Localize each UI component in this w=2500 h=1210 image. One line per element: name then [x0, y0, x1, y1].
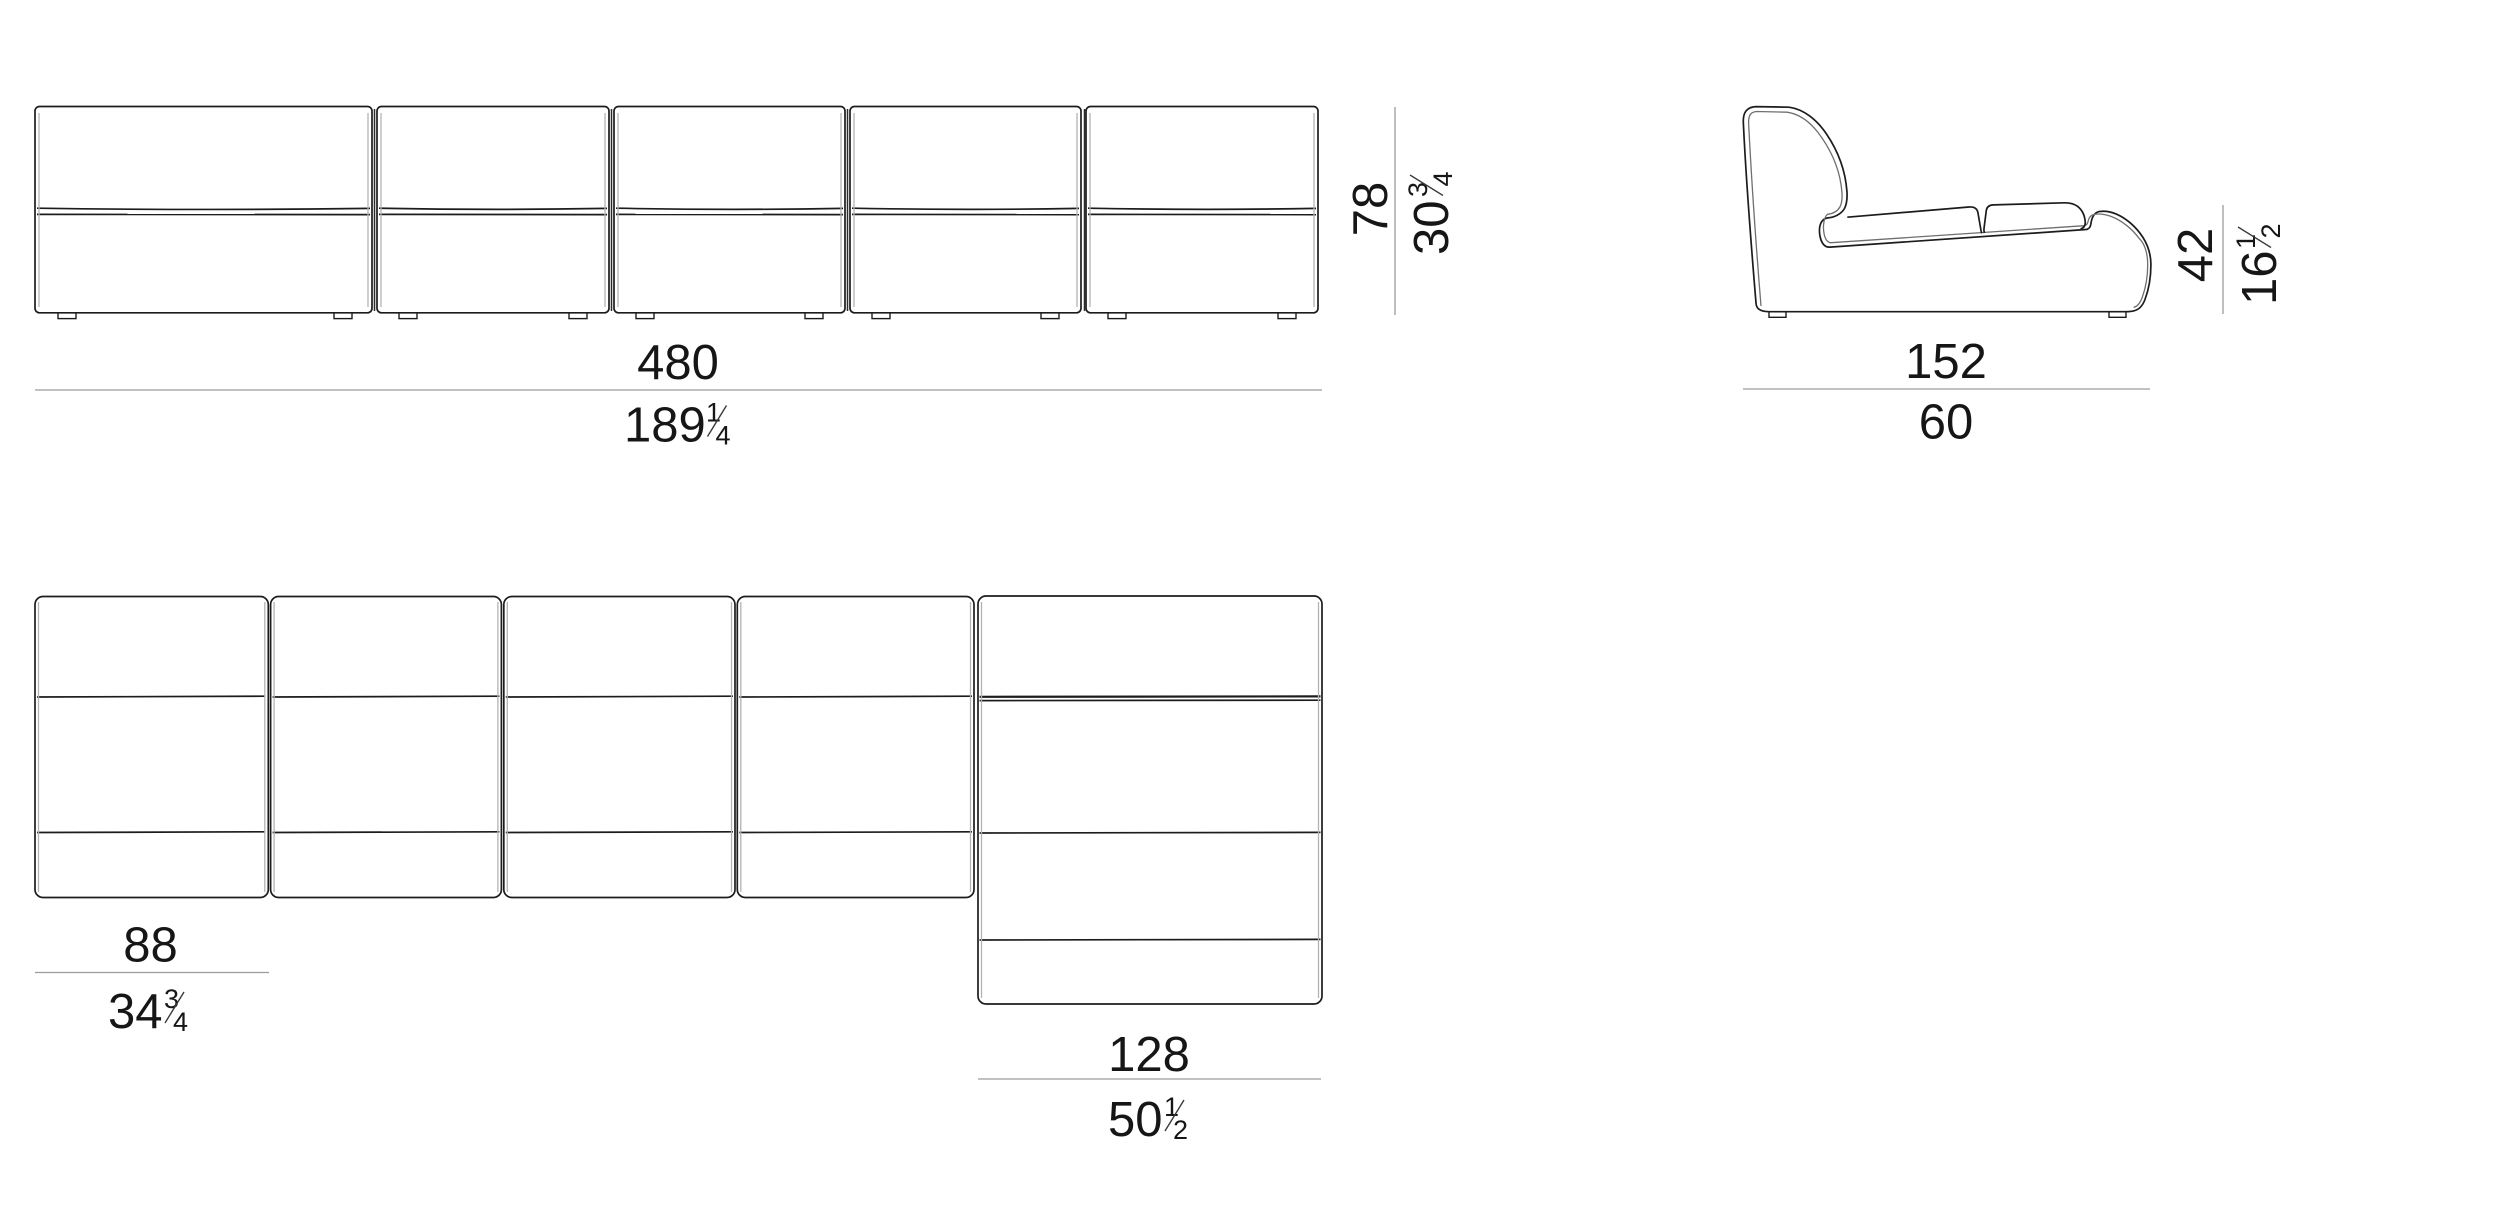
svg-text:4: 4 [173, 1007, 188, 1037]
svg-text:480: 480 [637, 336, 719, 390]
svg-text:4: 4 [716, 421, 731, 451]
svg-text:88: 88 [123, 919, 178, 973]
svg-text:2: 2 [1173, 1115, 1188, 1145]
svg-text:4: 4 [1428, 171, 1458, 186]
svg-text:16: 16 [2233, 250, 2287, 305]
svg-text:189: 189 [624, 399, 706, 453]
svg-text:42: 42 [2169, 228, 2223, 283]
svg-text:152: 152 [1905, 335, 1987, 389]
svg-text:50: 50 [1108, 1093, 1163, 1147]
svg-text:60: 60 [1919, 396, 1974, 450]
svg-text:128: 128 [1108, 1028, 1190, 1082]
svg-text:30: 30 [1405, 200, 1459, 255]
svg-text:34: 34 [108, 985, 163, 1039]
svg-text:2: 2 [2256, 223, 2286, 238]
svg-text:78: 78 [1344, 182, 1398, 237]
